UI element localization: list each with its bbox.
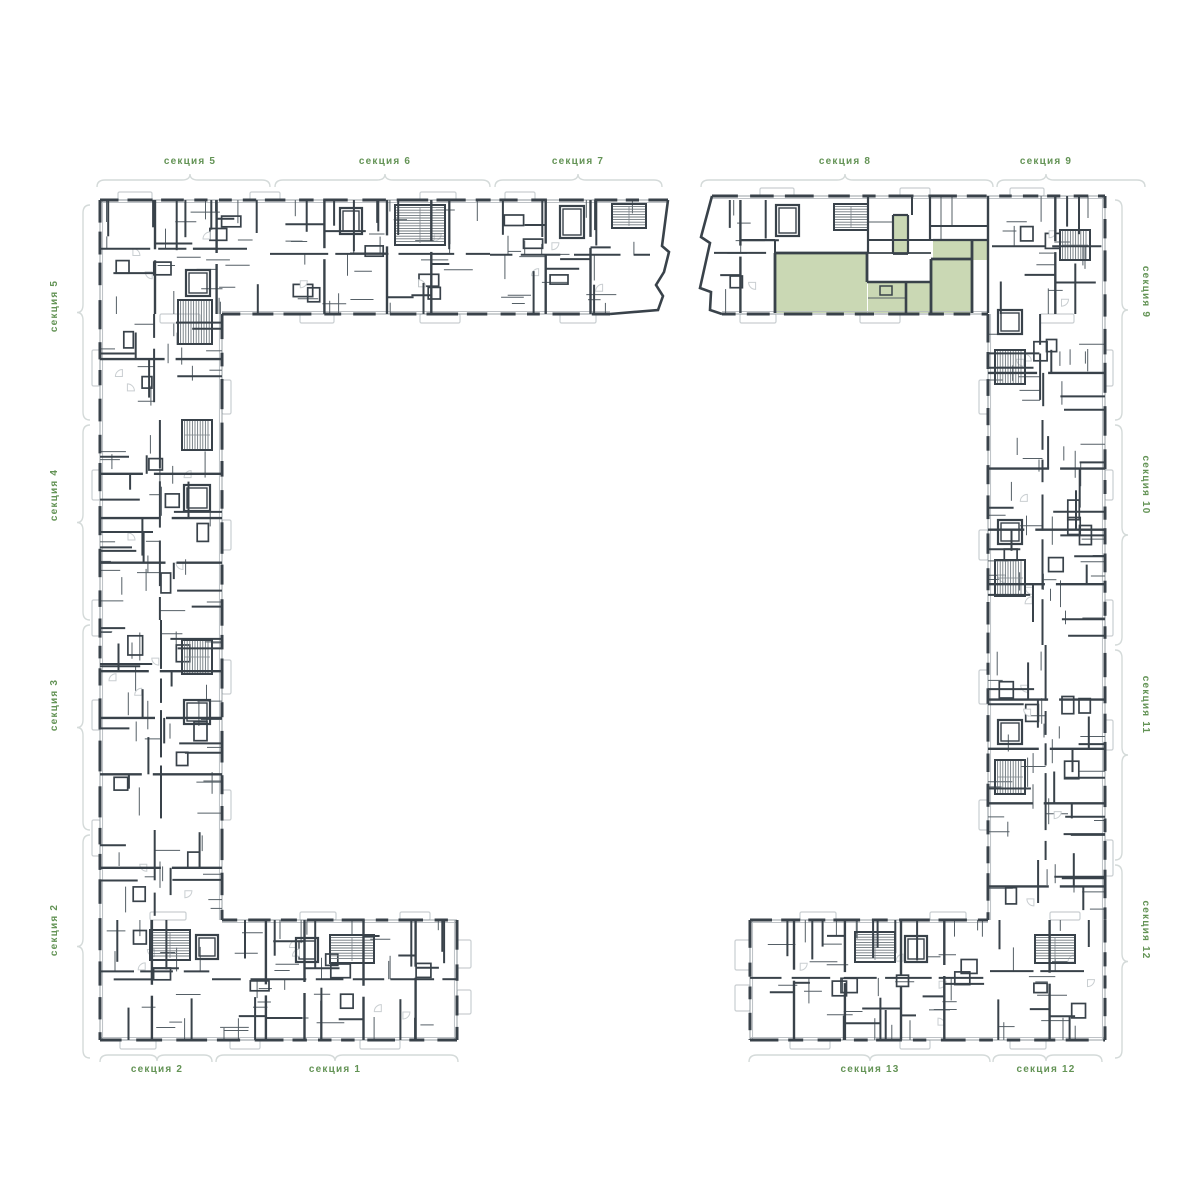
svg-text:секция 12: секция 12 [1017, 1064, 1076, 1075]
svg-text:секция 3: секция 3 [49, 679, 60, 731]
svg-text:секция 2: секция 2 [131, 1064, 183, 1075]
svg-text:секция 4: секция 4 [49, 469, 60, 521]
svg-text:секция 5: секция 5 [164, 156, 216, 167]
svg-text:секция 10: секция 10 [1140, 456, 1151, 515]
svg-text:секция 1: секция 1 [309, 1064, 361, 1075]
svg-text:секция 2: секция 2 [49, 904, 60, 956]
svg-text:секция 11: секция 11 [1140, 676, 1151, 734]
svg-text:секция 12: секция 12 [1140, 901, 1151, 960]
svg-text:секция 13: секция 13 [841, 1064, 900, 1075]
svg-text:секция 9: секция 9 [1140, 266, 1151, 318]
svg-text:секция 5: секция 5 [49, 280, 60, 332]
svg-text:секция 6: секция 6 [359, 156, 411, 167]
svg-text:секция 9: секция 9 [1020, 156, 1072, 167]
svg-text:секция 7: секция 7 [552, 156, 604, 167]
svg-text:секция 8: секция 8 [819, 156, 871, 167]
